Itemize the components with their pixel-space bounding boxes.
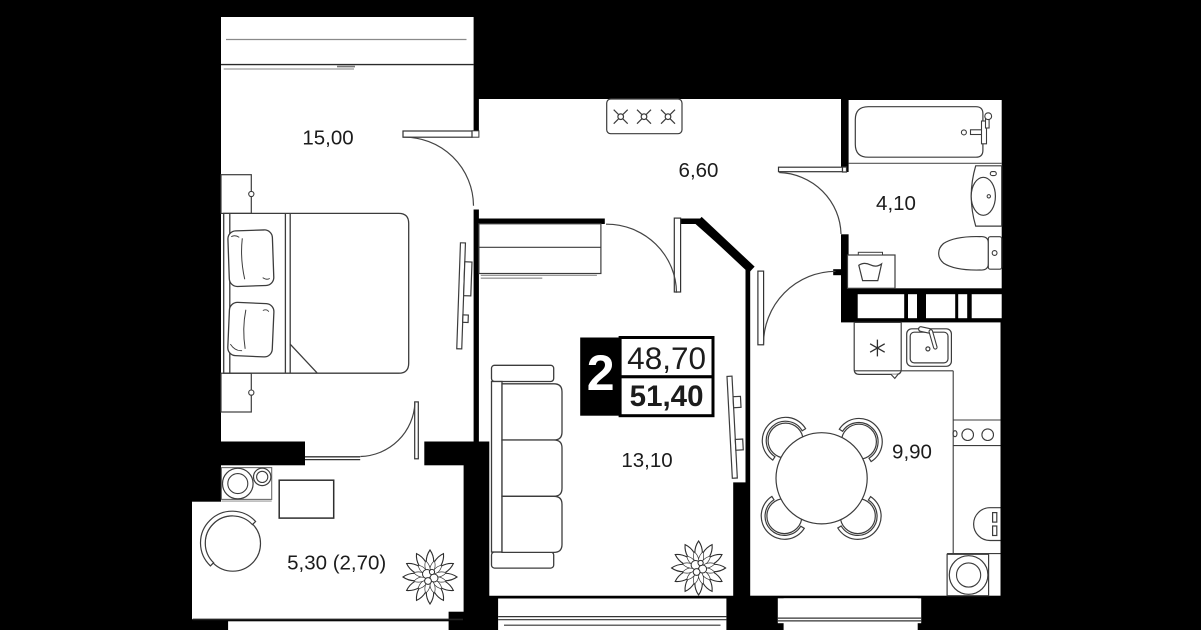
svg-text:48,70: 48,70 — [627, 340, 706, 376]
svg-text:51,40: 51,40 — [630, 380, 704, 413]
svg-text:15,00: 15,00 — [302, 126, 353, 149]
svg-text:6,60: 6,60 — [679, 159, 719, 182]
svg-text:2: 2 — [587, 345, 615, 401]
svg-text:5,30 (2,70): 5,30 (2,70) — [287, 552, 386, 575]
svg-text:9,90: 9,90 — [892, 441, 932, 464]
svg-text:13,10: 13,10 — [621, 449, 672, 472]
svg-text:4,10: 4,10 — [876, 192, 916, 215]
